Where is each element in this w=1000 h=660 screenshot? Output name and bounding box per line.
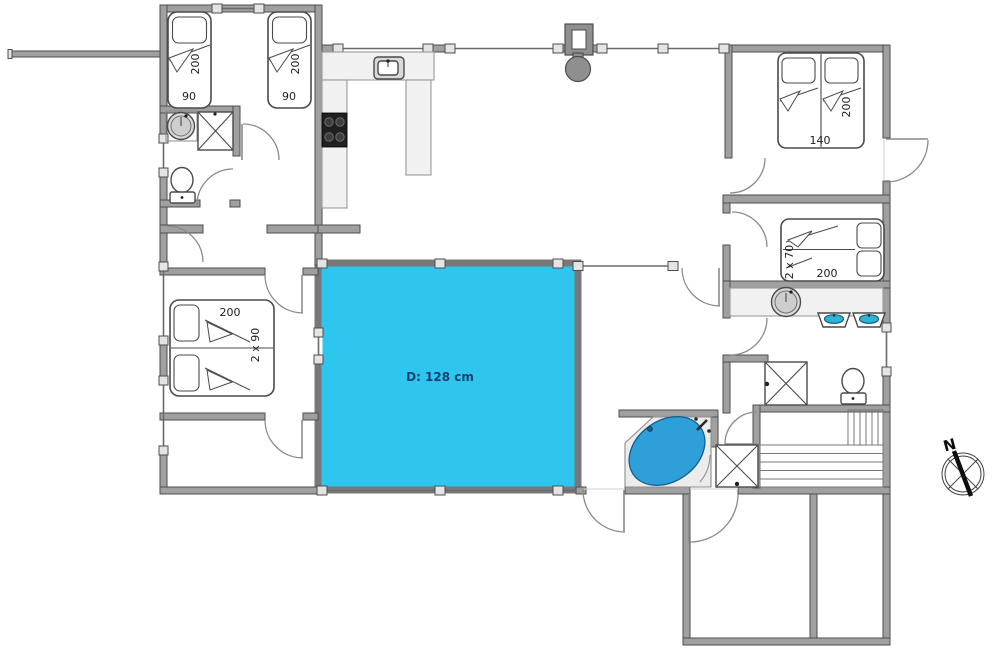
door-arc: [197, 169, 233, 205]
pillow: [857, 223, 881, 248]
toilet-icon: [841, 369, 866, 405]
bed-sw-double: 200 2 x 90: [170, 300, 274, 396]
kitchen-sink-icon: [374, 57, 404, 79]
wall-top: [724, 45, 890, 52]
wall-ne-divider: [723, 195, 890, 203]
wall-left: [160, 340, 167, 380]
wall-stub: [315, 225, 360, 233]
bathroom-northwest: [166, 111, 233, 203]
pillow: [857, 251, 881, 276]
wall-bottom: [576, 487, 586, 494]
floor-plan-page: D: 128 cm: [0, 0, 1000, 660]
wall-sw-bedroom-top: [160, 268, 265, 275]
wall-hall: [723, 203, 730, 213]
wall-corridor: [267, 225, 318, 233]
bed-nw-left: 200 90: [168, 12, 211, 108]
bed-nw-right: 200 90: [268, 12, 311, 108]
pillow: [273, 17, 307, 43]
sink-icon: [772, 288, 801, 317]
washbasin-icon: [853, 313, 885, 327]
floor-plan: D: 128 cm: [0, 0, 1000, 660]
wall-annex-divider: [810, 494, 817, 638]
wall-spa-top: [619, 410, 718, 417]
window: [882, 323, 891, 376]
window: [314, 328, 324, 364]
window: [159, 134, 168, 177]
bed-ne-double: 200 140: [778, 53, 864, 148]
door-arc: [583, 490, 625, 532]
wall-left: [160, 172, 167, 266]
compass-north-label: N: [941, 435, 958, 456]
wall-sauna-top: [753, 405, 890, 412]
sauna-benches: [760, 410, 883, 487]
pool-depth-label: D: 128 cm: [406, 370, 474, 384]
wall-sw-bedroom-bottom: [160, 413, 265, 420]
sink-icon: [168, 113, 195, 140]
wall-right: [883, 45, 890, 138]
door-arc: [730, 318, 767, 355]
bed-width-label: 2 x 90: [249, 328, 262, 363]
shower-icon: [716, 445, 758, 487]
door-arc: [725, 412, 757, 444]
fireplace-icon: [565, 24, 593, 82]
kitchen-counter: [406, 80, 431, 175]
bed-width-label: 140: [810, 134, 831, 147]
window: [445, 44, 563, 53]
pillow: [174, 305, 199, 341]
shower-icon: [765, 362, 807, 405]
wall-annex-bottom: [683, 638, 890, 645]
wall-stub: [230, 200, 240, 207]
bed-width-label: 90: [182, 90, 196, 103]
wall-bath-stub: [723, 355, 768, 362]
bed-width-label: 90: [282, 90, 296, 103]
stove-icon: [322, 113, 347, 147]
door-arc: [243, 124, 279, 160]
wall-sw-bedroom-bottom: [303, 413, 318, 420]
compass-rose: N: [941, 435, 984, 496]
pillow: [782, 58, 815, 83]
door-arc: [682, 268, 720, 306]
wall-bath-left: [723, 355, 730, 413]
wall-sw-bedroom-top: [303, 268, 318, 275]
wall-ne-bedroom-left: [725, 45, 732, 158]
bed-length-label: 200: [840, 97, 853, 118]
door-arc: [732, 212, 767, 247]
bed-length-label: 200: [189, 54, 202, 75]
bed-length-label: 200: [220, 306, 241, 319]
wall-nw-bath-right: [233, 106, 240, 156]
wall-right: [883, 372, 890, 645]
washbasin-icon: [818, 313, 850, 327]
wall-vanity-top: [723, 281, 890, 288]
compass-needle-icon: [954, 451, 971, 496]
vanity-counter: [730, 288, 883, 316]
wall-hall: [723, 245, 730, 283]
wall-bottom: [738, 487, 890, 494]
wall-hall: [723, 281, 730, 318]
bed-east-bunk: 2 x 70 200: [781, 219, 884, 281]
wall-bottom: [625, 487, 690, 494]
wall-fence: [10, 51, 162, 57]
kitchen: [322, 52, 434, 208]
window: [597, 44, 729, 53]
door-arc: [886, 140, 928, 182]
pillow: [173, 17, 207, 43]
door-arc: [730, 158, 765, 193]
bed-length-label: 200: [289, 54, 302, 75]
door-arc: [265, 420, 303, 458]
shower-icon: [198, 112, 233, 150]
pillow: [174, 355, 199, 391]
bed-width-label: 2 x 70: [783, 245, 796, 280]
wall-spa-right: [711, 417, 718, 447]
wall-end-cap: [8, 50, 12, 59]
door-arc: [690, 494, 738, 542]
pillow: [825, 58, 858, 83]
toilet-icon: [170, 168, 195, 204]
wall-bottom: [160, 487, 320, 494]
swimming-pool: D: 128 cm: [318, 263, 578, 490]
bed-length-label: 200: [817, 267, 838, 280]
